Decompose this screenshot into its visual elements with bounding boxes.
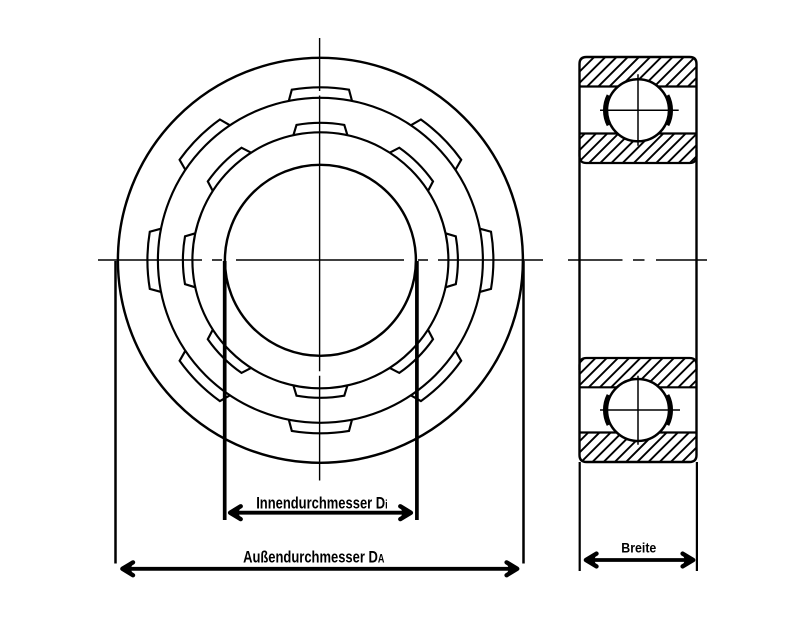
svg-text:Außendurchmesser DA: Außendurchmesser DA	[243, 549, 384, 567]
svg-text:Innendurchmesser Di: Innendurchmesser Di	[256, 494, 388, 512]
svg-text:Breite: Breite	[621, 541, 656, 556]
